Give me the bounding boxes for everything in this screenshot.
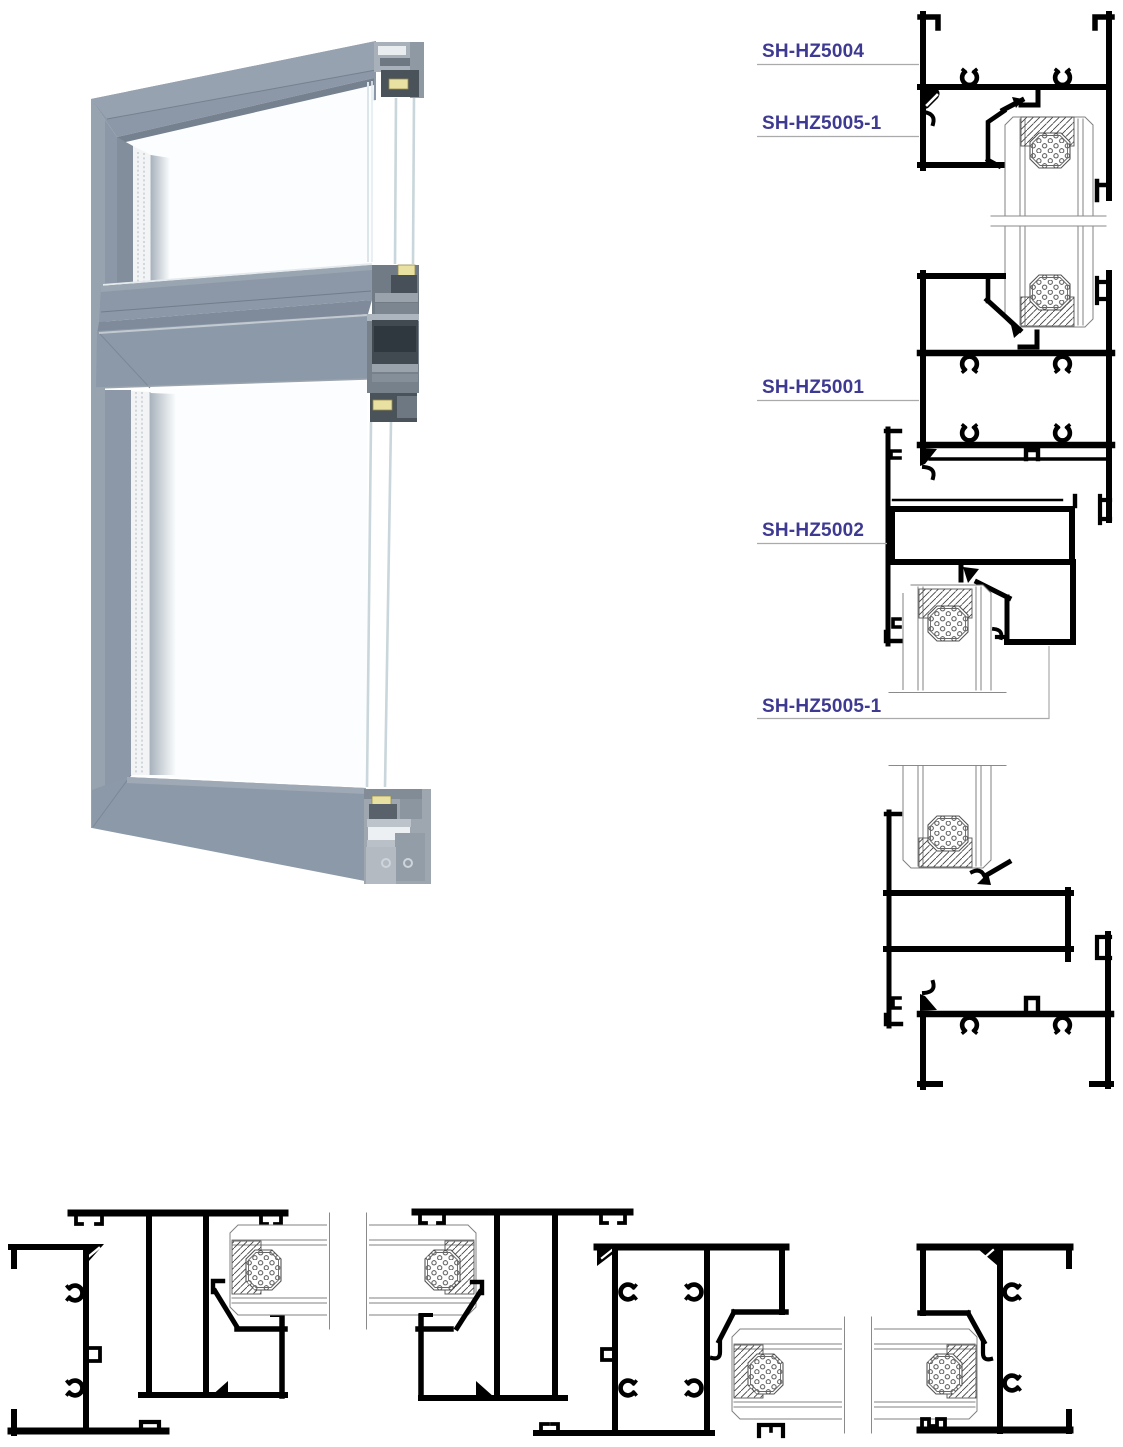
svg-text:SH-HZ5001: SH-HZ5001	[762, 377, 864, 398]
svg-text:SH-HZ5005-1: SH-HZ5005-1	[762, 696, 882, 717]
svg-text:SH-HZ5002: SH-HZ5002	[762, 520, 864, 541]
svg-text:SH-HZ5004: SH-HZ5004	[762, 41, 864, 62]
svg-text:SH-HZ5005-1: SH-HZ5005-1	[762, 113, 882, 134]
